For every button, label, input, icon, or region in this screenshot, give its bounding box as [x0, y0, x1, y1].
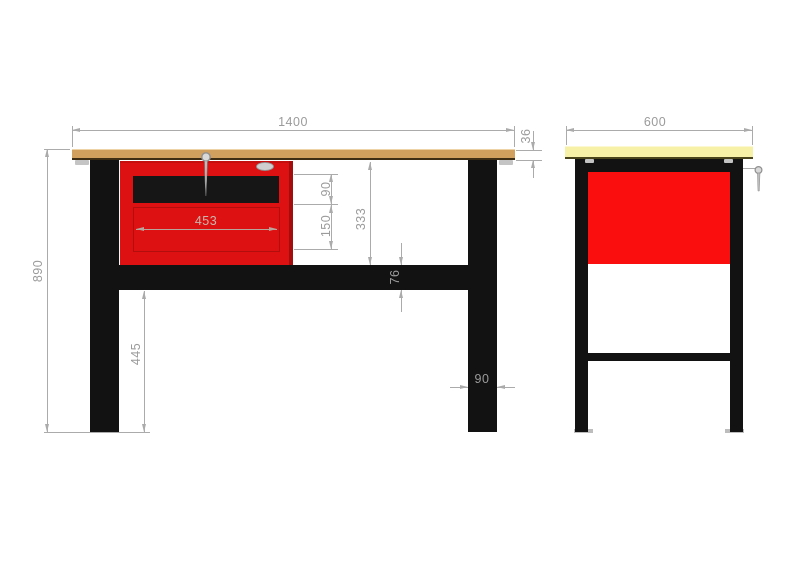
arrowhead — [531, 160, 535, 168]
side-stretcher — [588, 353, 730, 361]
side-right-mount-bracket — [724, 159, 733, 163]
arrowhead — [460, 385, 468, 389]
side-worktop — [565, 146, 753, 159]
dim-total-depth-label: 600 — [644, 116, 666, 129]
arrowhead — [136, 227, 144, 231]
arrowhead — [142, 291, 146, 299]
side-top-rail — [575, 159, 743, 172]
arrowhead — [329, 196, 333, 204]
arrowhead — [399, 257, 403, 265]
front-right-leg — [468, 160, 497, 432]
arrowhead — [744, 128, 752, 132]
extension-line — [516, 150, 542, 151]
dim-drawer-width-label: 453 — [195, 215, 217, 228]
side-cabinet-panel — [588, 172, 730, 264]
arrowhead — [566, 128, 574, 132]
side-left-leg — [575, 159, 588, 432]
front-right-mount-bracket — [499, 160, 513, 165]
arrowhead — [399, 290, 403, 298]
arrowhead — [269, 227, 277, 231]
dim-line — [136, 229, 277, 230]
side-left-mount-bracket — [585, 159, 594, 163]
dim-worktop-thickness-label: 36 — [520, 129, 533, 144]
dim-top-drawer-height-label: 90 — [320, 182, 333, 197]
arrowhead — [329, 205, 333, 213]
dim-total-width-label: 1400 — [278, 116, 308, 129]
dim-line — [566, 130, 752, 131]
arrowhead — [368, 257, 372, 265]
brand-badge — [256, 162, 274, 171]
arrowhead — [329, 241, 333, 249]
front-stretcher — [119, 265, 468, 290]
extension-line — [294, 249, 338, 250]
dim-line — [47, 149, 48, 432]
arrowhead — [142, 424, 146, 432]
arrowhead — [45, 424, 49, 432]
arrowhead — [72, 128, 80, 132]
dim-total-height-label: 890 — [32, 260, 45, 282]
dim-line — [72, 130, 514, 131]
extension-line — [752, 126, 753, 145]
dim-stretcher-height-label: 76 — [389, 270, 402, 285]
dim-line — [370, 162, 371, 265]
extension-line — [514, 126, 515, 147]
extension-line — [516, 160, 542, 161]
dim-worktop-to-stretcher-label: 333 — [355, 208, 368, 230]
floor-extension-line — [44, 432, 150, 433]
arrowhead — [497, 385, 505, 389]
lock-key-icon — [198, 149, 214, 199]
front-left-mount-bracket — [75, 160, 89, 165]
hanging-key-icon — [752, 163, 765, 194]
dim-bottom-drawer-height-label: 150 — [320, 215, 333, 237]
technical-drawing-canvas: 1400 36 890 — [0, 0, 800, 566]
arrowhead — [368, 162, 372, 170]
dim-leg-width-label: 90 — [475, 373, 490, 386]
arrowhead — [45, 149, 49, 157]
front-left-leg — [90, 160, 119, 432]
dim-floor-to-stretcher-label: 445 — [130, 343, 143, 365]
dim-line — [144, 291, 145, 432]
arrowhead — [506, 128, 514, 132]
side-right-leg — [730, 159, 743, 432]
front-worktop — [72, 149, 515, 160]
